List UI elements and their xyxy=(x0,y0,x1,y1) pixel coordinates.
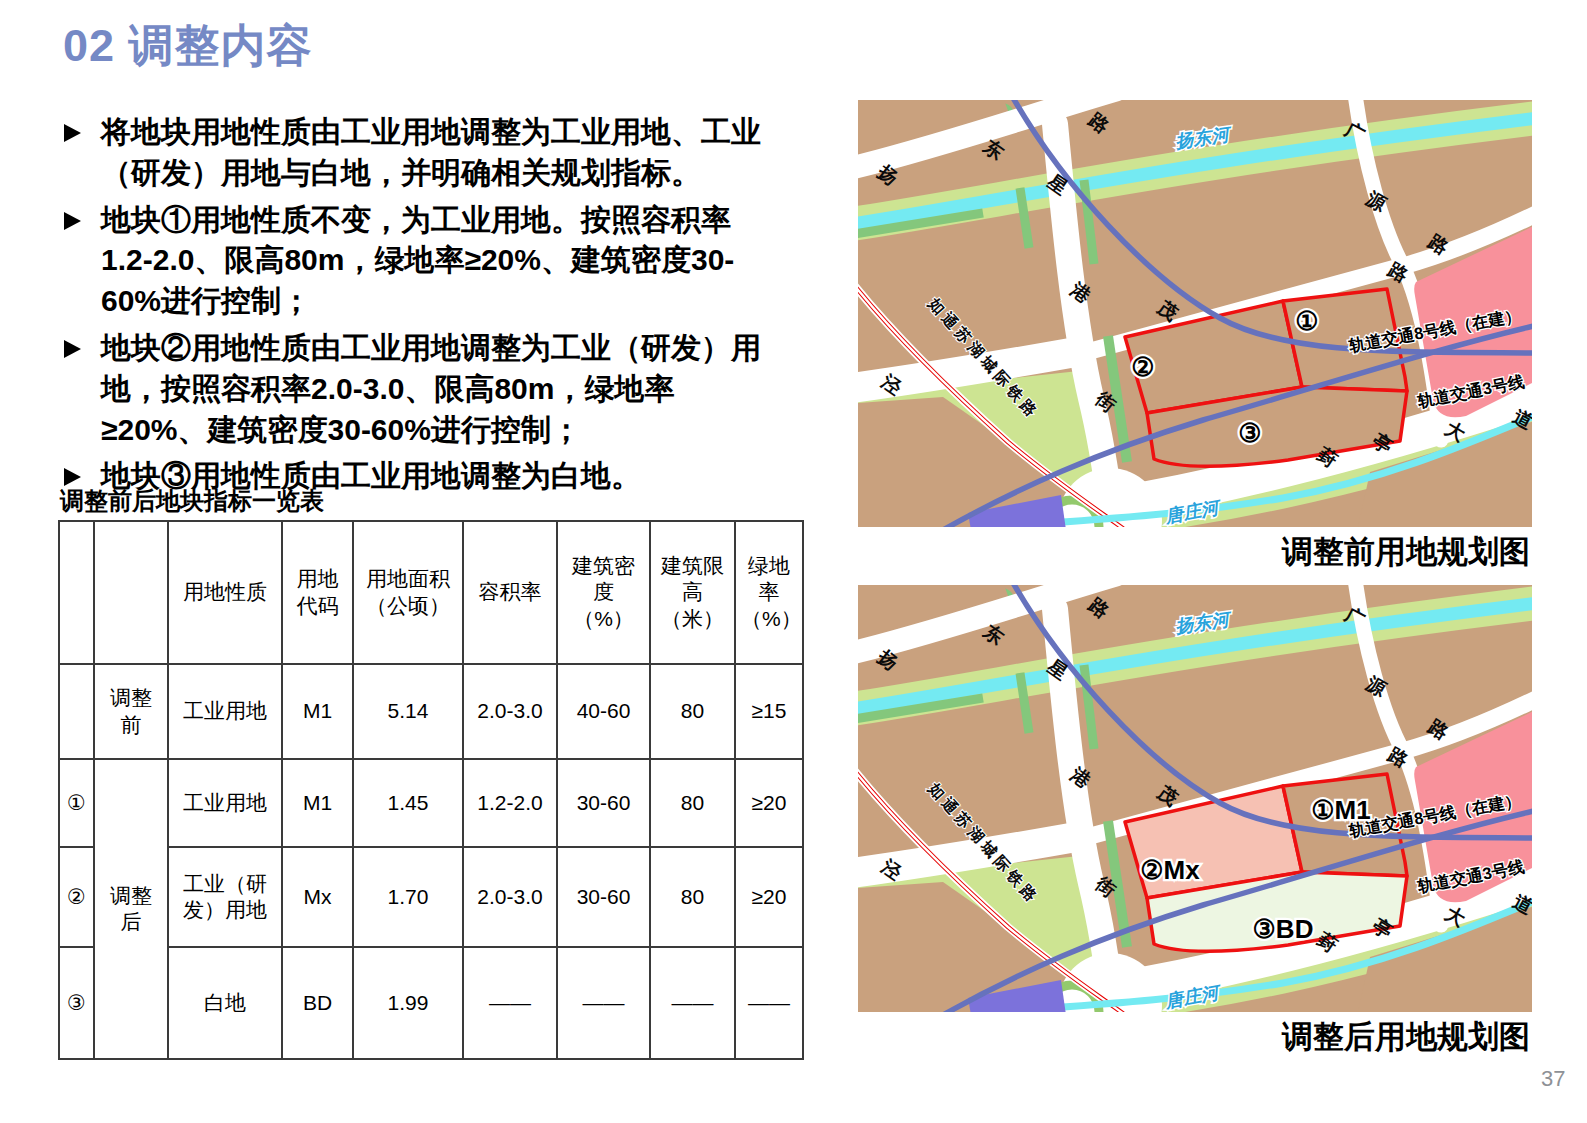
cell-height: 80 xyxy=(650,664,735,759)
cell-density: 30-60 xyxy=(557,759,650,847)
page-title: 02 调整内容 xyxy=(63,16,313,76)
cell-green: —— xyxy=(735,947,803,1059)
plot-label: ③ xyxy=(1238,418,1261,448)
cell-far: 2.0-3.0 xyxy=(463,664,557,759)
cell-density: 40-60 xyxy=(557,664,650,759)
cell-far: 1.2-2.0 xyxy=(463,759,557,847)
cell-green: ≥15 xyxy=(735,664,803,759)
header-cell xyxy=(59,521,94,664)
map-caption-before: 调整前用地规划图 xyxy=(858,531,1530,573)
cell-green: ≥20 xyxy=(735,759,803,847)
cell-code: M1 xyxy=(282,664,353,759)
header-cell xyxy=(94,521,168,664)
cell-phase: 调整后 xyxy=(94,759,168,1059)
cell-area: 1.45 xyxy=(353,759,463,847)
cell-use: 工业用地 xyxy=(168,759,282,847)
arrow-bullet-icon xyxy=(64,200,101,322)
cell-code: M1 xyxy=(282,759,353,847)
arrow-bullet-icon xyxy=(64,112,101,194)
table-row: ② 工业（研发）用地 Mx 1.70 2.0-3.0 30-60 80 ≥20 xyxy=(59,847,803,947)
header-cell: 建筑密度（%） xyxy=(557,521,650,664)
cell-area: 1.99 xyxy=(353,947,463,1059)
plot-label: ① xyxy=(1295,306,1318,336)
cell-density: 30-60 xyxy=(557,847,650,947)
cell-use: 工业（研发）用地 xyxy=(168,847,282,947)
table-row: ③ 白地 BD 1.99 —— —— —— —— xyxy=(59,947,803,1059)
cell-use: 白地 xyxy=(168,947,282,1059)
cell-green: ≥20 xyxy=(735,847,803,947)
cell-use: 工业用地 xyxy=(168,664,282,759)
header-cell: 容积率 xyxy=(463,521,557,664)
map-caption-after: 调整后用地规划图 xyxy=(858,1016,1530,1058)
cell-far: 2.0-3.0 xyxy=(463,847,557,947)
land-use-map-after: 扬东路星港街泾茂路广源路葑亭大道如通苏湖城际铁路扬东河唐庄河轨道交通8号线（在建… xyxy=(858,585,1532,1012)
cell-height: 80 xyxy=(650,847,735,947)
cell-plot: ③ xyxy=(59,947,94,1059)
table-row: 调整前 工业用地 M1 5.14 2.0-3.0 40-60 80 ≥15 xyxy=(59,664,803,759)
plot-label: ③BD xyxy=(1253,914,1314,944)
plot-indicator-table: 用地性质 用地代码 用地面积（公顷） 容积率 建筑密度（%） 建筑限高（米） 绿… xyxy=(58,520,804,1060)
bullet-item: 将地块用地性质由工业用地调整为工业用地、工业（研发）用地与白地，并明确相关规划指… xyxy=(64,112,764,194)
bullet-item: 地块①用地性质不变，为工业用地。按照容积率1.2-2.0、限高80m，绿地率≥2… xyxy=(64,200,764,322)
land-use-map-before: 扬东路星港街泾茂路广源路葑亭大道如通苏湖城际铁路扬东河唐庄河轨道交通8号线（在建… xyxy=(858,100,1532,527)
cell-plot xyxy=(59,664,94,759)
page-number: 37 xyxy=(1541,1066,1565,1092)
table-title: 调整前后地块指标一览表 xyxy=(60,485,324,517)
slide: 02 调整内容 将地块用地性质由工业用地调整为工业用地、工业（研发）用地与白地，… xyxy=(0,0,1587,1123)
cell-code: BD xyxy=(282,947,353,1059)
plot-label: ②Mx xyxy=(1140,855,1200,885)
bullet-text: 地块①用地性质不变，为工业用地。按照容积率1.2-2.0、限高80m，绿地率≥2… xyxy=(101,200,761,322)
cell-area: 1.70 xyxy=(353,847,463,947)
table-row: ① 调整后 工业用地 M1 1.45 1.2-2.0 30-60 80 ≥20 xyxy=(59,759,803,847)
bullet-text: 地块②用地性质由工业用地调整为工业（研发）用地，按照容积率2.0-3.0、限高8… xyxy=(101,328,761,450)
cell-density: —— xyxy=(557,947,650,1059)
header-cell: 用地性质 xyxy=(168,521,282,664)
arrow-bullet-icon xyxy=(64,328,101,450)
cell-phase: 调整前 xyxy=(94,664,168,759)
header-cell: 建筑限高（米） xyxy=(650,521,735,664)
bullet-list: 将地块用地性质由工业用地调整为工业用地、工业（研发）用地与白地，并明确相关规划指… xyxy=(64,112,764,503)
bullet-item: 地块②用地性质由工业用地调整为工业（研发）用地，按照容积率2.0-3.0、限高8… xyxy=(64,328,764,450)
bullet-text: 将地块用地性质由工业用地调整为工业用地、工业（研发）用地与白地，并明确相关规划指… xyxy=(101,112,761,194)
header-cell: 用地代码 xyxy=(282,521,353,664)
plot-label: ①M1 xyxy=(1311,795,1370,825)
header-cell: 用地面积（公顷） xyxy=(353,521,463,664)
cell-area: 5.14 xyxy=(353,664,463,759)
cell-height: 80 xyxy=(650,759,735,847)
plot-label: ② xyxy=(1131,352,1154,382)
cell-height: —— xyxy=(650,947,735,1059)
cell-code: Mx xyxy=(282,847,353,947)
cell-far: —— xyxy=(463,947,557,1059)
header-cell: 绿地率（%） xyxy=(735,521,803,664)
cell-plot: ② xyxy=(59,847,94,947)
cell-plot: ① xyxy=(59,759,94,847)
table-header-row: 用地性质 用地代码 用地面积（公顷） 容积率 建筑密度（%） 建筑限高（米） 绿… xyxy=(59,521,803,664)
